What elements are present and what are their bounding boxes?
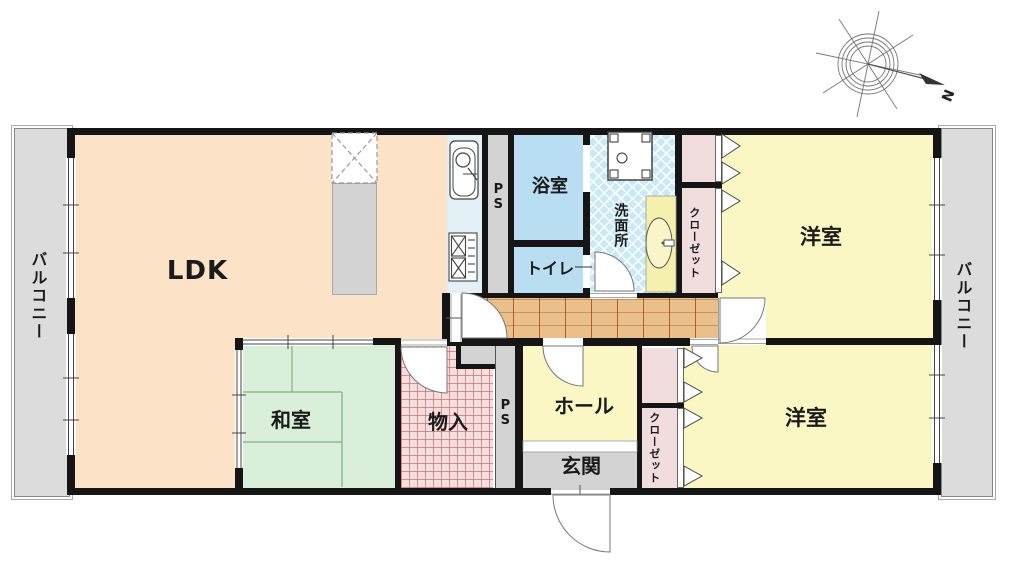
wall-corridor-top-east: [637, 293, 718, 298]
ps-top-space: [488, 135, 508, 293]
washitsu-label: 和室: [263, 407, 319, 433]
closet-bottom-upper: [642, 348, 677, 403]
service-duct-block: [458, 346, 495, 365]
wall-washitsu-corner-b: [235, 468, 243, 490]
hall-label: ホール: [546, 393, 622, 419]
wall-hall-east: [637, 346, 642, 488]
wall-corridor-bottom-b: [583, 338, 690, 346]
wall-bath-toilet: [514, 240, 583, 247]
washroom-label: 洗面所: [611, 194, 629, 256]
ldk-room-lower: [75, 293, 447, 343]
wall-washitsu-corner-a: [235, 338, 243, 350]
wall-washitsu-right: [395, 338, 401, 490]
toilet-label: トイレ: [524, 259, 576, 279]
closet-top-upper: [682, 135, 715, 182]
wall-right-mid: [933, 300, 941, 345]
ps-top-label: PS: [490, 180, 506, 214]
compass-icon: N: [816, 11, 956, 117]
door-arc-entrance: [553, 495, 610, 552]
closet-bottom-label: クローゼット: [647, 410, 661, 486]
floor-plan: N LDK 和室 物入 ホール 玄関 浴室 トイレ 洗面所 洋室 洋室 クローゼ…: [0, 0, 1032, 568]
kitchen-counter-strip: [447, 135, 482, 293]
genkan-step: [523, 441, 637, 452]
wall-ps-hall: [515, 346, 523, 488]
monoire-label: 物入: [420, 409, 476, 435]
wall-washitsu-corner-top: [373, 338, 395, 345]
corridor: [462, 298, 718, 338]
ps-bottom-label: PS: [497, 396, 513, 430]
wall-western-top-south: [766, 338, 933, 345]
closet-door-track: [715, 188, 722, 293]
wall-corridor-bottom-a: [447, 338, 543, 346]
closet-door-track: [715, 135, 722, 182]
wall-left-bottom: [67, 455, 75, 495]
wall-left-mid: [67, 296, 75, 334]
washroom-room: [590, 135, 675, 293]
wall-left-top: [67, 128, 75, 160]
wall-kitchen-ps: [482, 135, 488, 298]
wall-top: [67, 128, 940, 135]
wall-monoire-step-h: [456, 364, 495, 369]
wall-bottom-right: [610, 488, 940, 495]
north-label: N: [937, 87, 956, 104]
wall-ps-bath: [508, 135, 514, 298]
closet-door-track: [677, 408, 684, 488]
western-bottom-label: 洋室: [778, 405, 834, 431]
wall-corridor-top-west: [462, 293, 590, 298]
closet-door-track: [677, 348, 684, 403]
genkan-label: 玄関: [553, 453, 609, 479]
wall-ldk-corridor-stub: [442, 293, 450, 343]
north-arrow-icon: [919, 73, 945, 85]
wall-bath-washroom-b: [583, 192, 590, 255]
wall-right-bottom: [933, 463, 941, 495]
bath-label: 浴室: [522, 176, 578, 198]
wall-washroom-closet: [675, 135, 682, 293]
wall-bath-washroom-a: [583, 135, 590, 145]
balcony-left-label: バルコニー: [27, 238, 47, 354]
wall-right-top: [933, 128, 941, 158]
western-top-label: 洋室: [793, 224, 849, 250]
kitchen-island-counter: [332, 183, 377, 295]
ldk-label: LDK: [155, 255, 240, 289]
balcony-right-label: バルコニー: [952, 248, 972, 364]
wall-bottom-left: [67, 488, 551, 495]
ldk-room-left: [75, 343, 235, 488]
closet-top-label: クローゼット: [687, 194, 701, 292]
